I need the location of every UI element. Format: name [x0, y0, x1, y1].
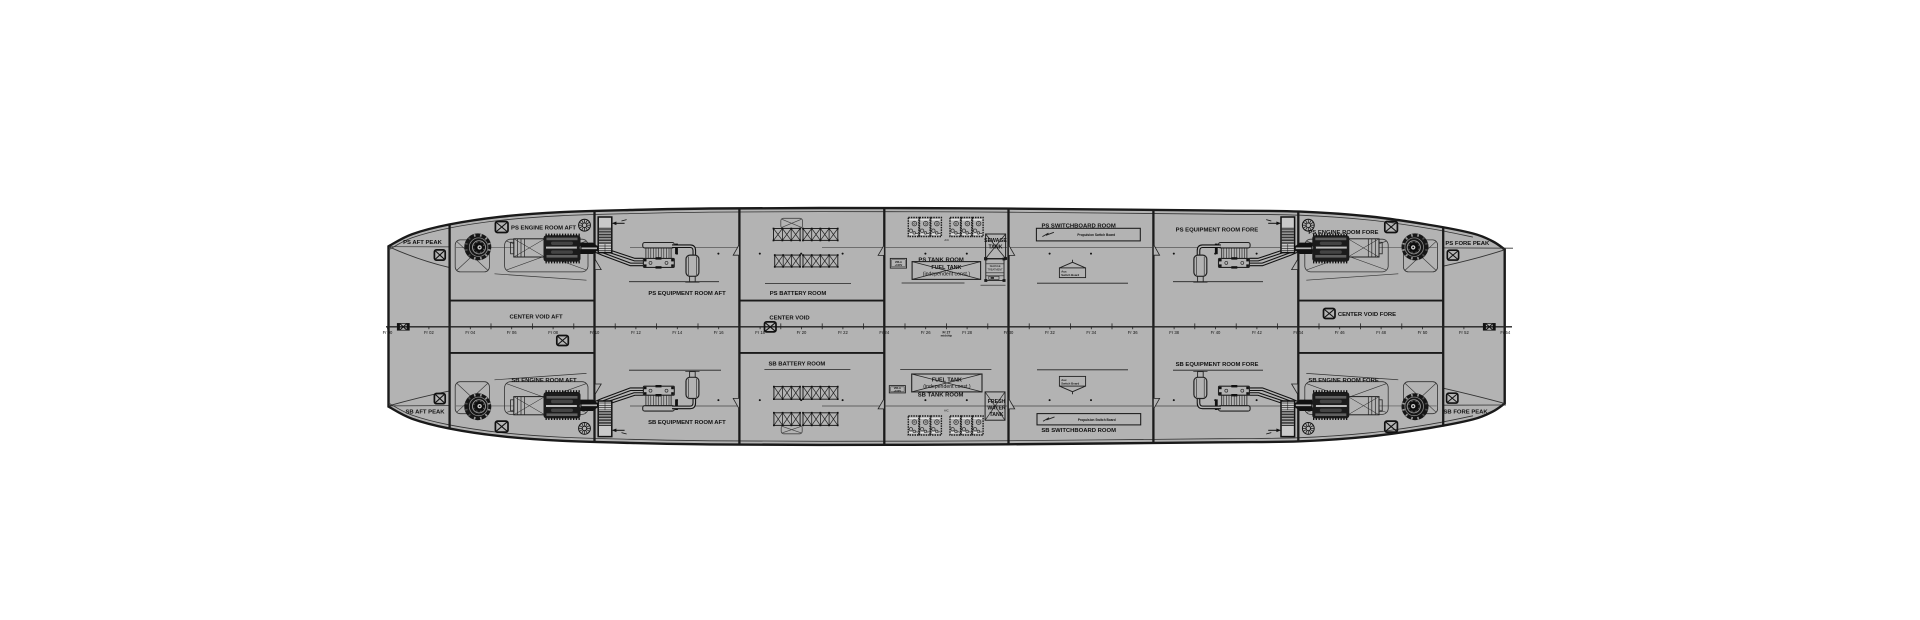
svg-text:TANK: TANK	[988, 244, 1002, 250]
svg-text:SB EQUIPMENT ROOM FORE: SB EQUIPMENT ROOM FORE	[1176, 362, 1259, 368]
svg-text:Fr 52: Fr 52	[1459, 330, 1469, 335]
svg-text:Fr 50: Fr 50	[1418, 330, 1428, 335]
svg-text:SB SWITCHBOARD ROOM: SB SWITCHBOARD ROOM	[1041, 428, 1116, 434]
svg-text:PS ENGINE ROOM AFT: PS ENGINE ROOM AFT	[511, 225, 576, 231]
svg-text:Fr 16: Fr 16	[714, 330, 724, 335]
svg-text:TREATMENT: TREATMENT	[988, 269, 1004, 272]
svg-text:Switch Board: Switch Board	[1061, 273, 1079, 277]
svg-text:PS EQUIPMENT ROOM FORE: PS EQUIPMENT ROOM FORE	[1176, 228, 1259, 234]
svg-text:A/C: A/C	[944, 238, 949, 242]
svg-text:Fr 02: Fr 02	[424, 330, 434, 335]
svg-text:Fr 44: Fr 44	[1293, 330, 1303, 335]
svg-text:CENTER VOID FORE: CENTER VOID FORE	[1338, 312, 1396, 318]
svg-text:Propulsion Switch Board: Propulsion Switch Board	[1078, 418, 1116, 422]
svg-text:TANK: TANK	[989, 412, 1003, 418]
svg-text:Fr 36: Fr 36	[1128, 330, 1138, 335]
svg-text:Fr 06: Fr 06	[507, 330, 517, 335]
svg-text:Propulsion Switch Board: Propulsion Switch Board	[1077, 233, 1115, 237]
svg-text:Fr 24: Fr 24	[879, 330, 889, 335]
svg-text:CENTER VOID: CENTER VOID	[769, 316, 809, 322]
svg-text:Fr 04: Fr 04	[465, 330, 475, 335]
svg-text:PS EQUIPMENT ROOM AFT: PS EQUIPMENT ROOM AFT	[648, 291, 726, 297]
svg-text:FUEL TANK: FUEL TANK	[931, 265, 961, 271]
svg-text:SB ENGINE ROOM AFT: SB ENGINE ROOM AFT	[511, 378, 577, 384]
svg-text:PS FORE PEAK: PS FORE PEAK	[1445, 241, 1490, 247]
svg-text:(independent const.): (independent const.)	[923, 384, 971, 390]
svg-text:Fr 32: Fr 32	[1045, 330, 1055, 335]
svg-text:WATER: WATER	[987, 406, 1006, 412]
svg-text:A/C: A/C	[944, 408, 949, 412]
svg-text:PS ENGINE ROOM FORE: PS ENGINE ROOM FORE	[1308, 230, 1378, 236]
svg-text:Fr 10: Fr 10	[590, 330, 600, 335]
svg-text:PS AFT PEAK: PS AFT PEAK	[403, 240, 442, 246]
svg-text:Fr 38: Fr 38	[1169, 330, 1179, 335]
svg-text:Fr 12: Fr 12	[631, 330, 641, 335]
svg-text:SB AFT PEAK: SB AFT PEAK	[405, 410, 445, 416]
svg-text:SEWAGE: SEWAGE	[984, 238, 1007, 244]
svg-text:Fr 30: Fr 30	[1004, 330, 1014, 335]
svg-text:SB BATTERY ROOM: SB BATTERY ROOM	[768, 362, 825, 368]
svg-text:SB TANK ROOM: SB TANK ROOM	[918, 393, 964, 399]
svg-text:SB FORE PEAK: SB FORE PEAK	[1444, 410, 1489, 416]
svg-text:FUEL TANK: FUEL TANK	[932, 377, 962, 383]
svg-text:Fr 46: Fr 46	[1335, 330, 1345, 335]
svg-text:CENTER VOID AFT: CENTER VOID AFT	[509, 314, 563, 320]
svg-text:Fr 00: Fr 00	[383, 330, 393, 335]
svg-text:Fr 28: Fr 28	[962, 330, 972, 335]
svg-text:Fr 40: Fr 40	[1211, 330, 1221, 335]
svg-text:Fr 42: Fr 42	[1252, 330, 1262, 335]
svg-text:SB ENGINE ROOM FORE: SB ENGINE ROOM FORE	[1308, 378, 1378, 384]
svg-text:Fr 34: Fr 34	[1086, 330, 1096, 335]
svg-text:PS TANK ROOM: PS TANK ROOM	[918, 257, 963, 263]
svg-text:Fr 48: Fr 48	[1376, 330, 1386, 335]
svg-text:PS BATTERY ROOM: PS BATTERY ROOM	[770, 291, 827, 297]
svg-text:Fr 20: Fr 20	[797, 330, 807, 335]
svg-text:Fr 54: Fr 54	[1500, 330, 1510, 335]
svg-text:Fr 26: Fr 26	[921, 330, 931, 335]
svg-text:+100V: +100V	[895, 263, 903, 267]
svg-text:(independent const.): (independent const.)	[923, 272, 971, 278]
svg-text:Fr 08: Fr 08	[548, 330, 558, 335]
svg-text:Fr 14: Fr 14	[672, 330, 682, 335]
svg-text:+100V: +100V	[894, 389, 902, 393]
svg-text:midship: midship	[941, 334, 953, 338]
svg-text:Switch Board: Switch Board	[1061, 382, 1079, 386]
svg-text:Fr 22: Fr 22	[838, 330, 848, 335]
svg-text:FRESH: FRESH	[988, 399, 1006, 405]
svg-text:SB EQUIPMENT ROOM AFT: SB EQUIPMENT ROOM AFT	[648, 420, 726, 426]
